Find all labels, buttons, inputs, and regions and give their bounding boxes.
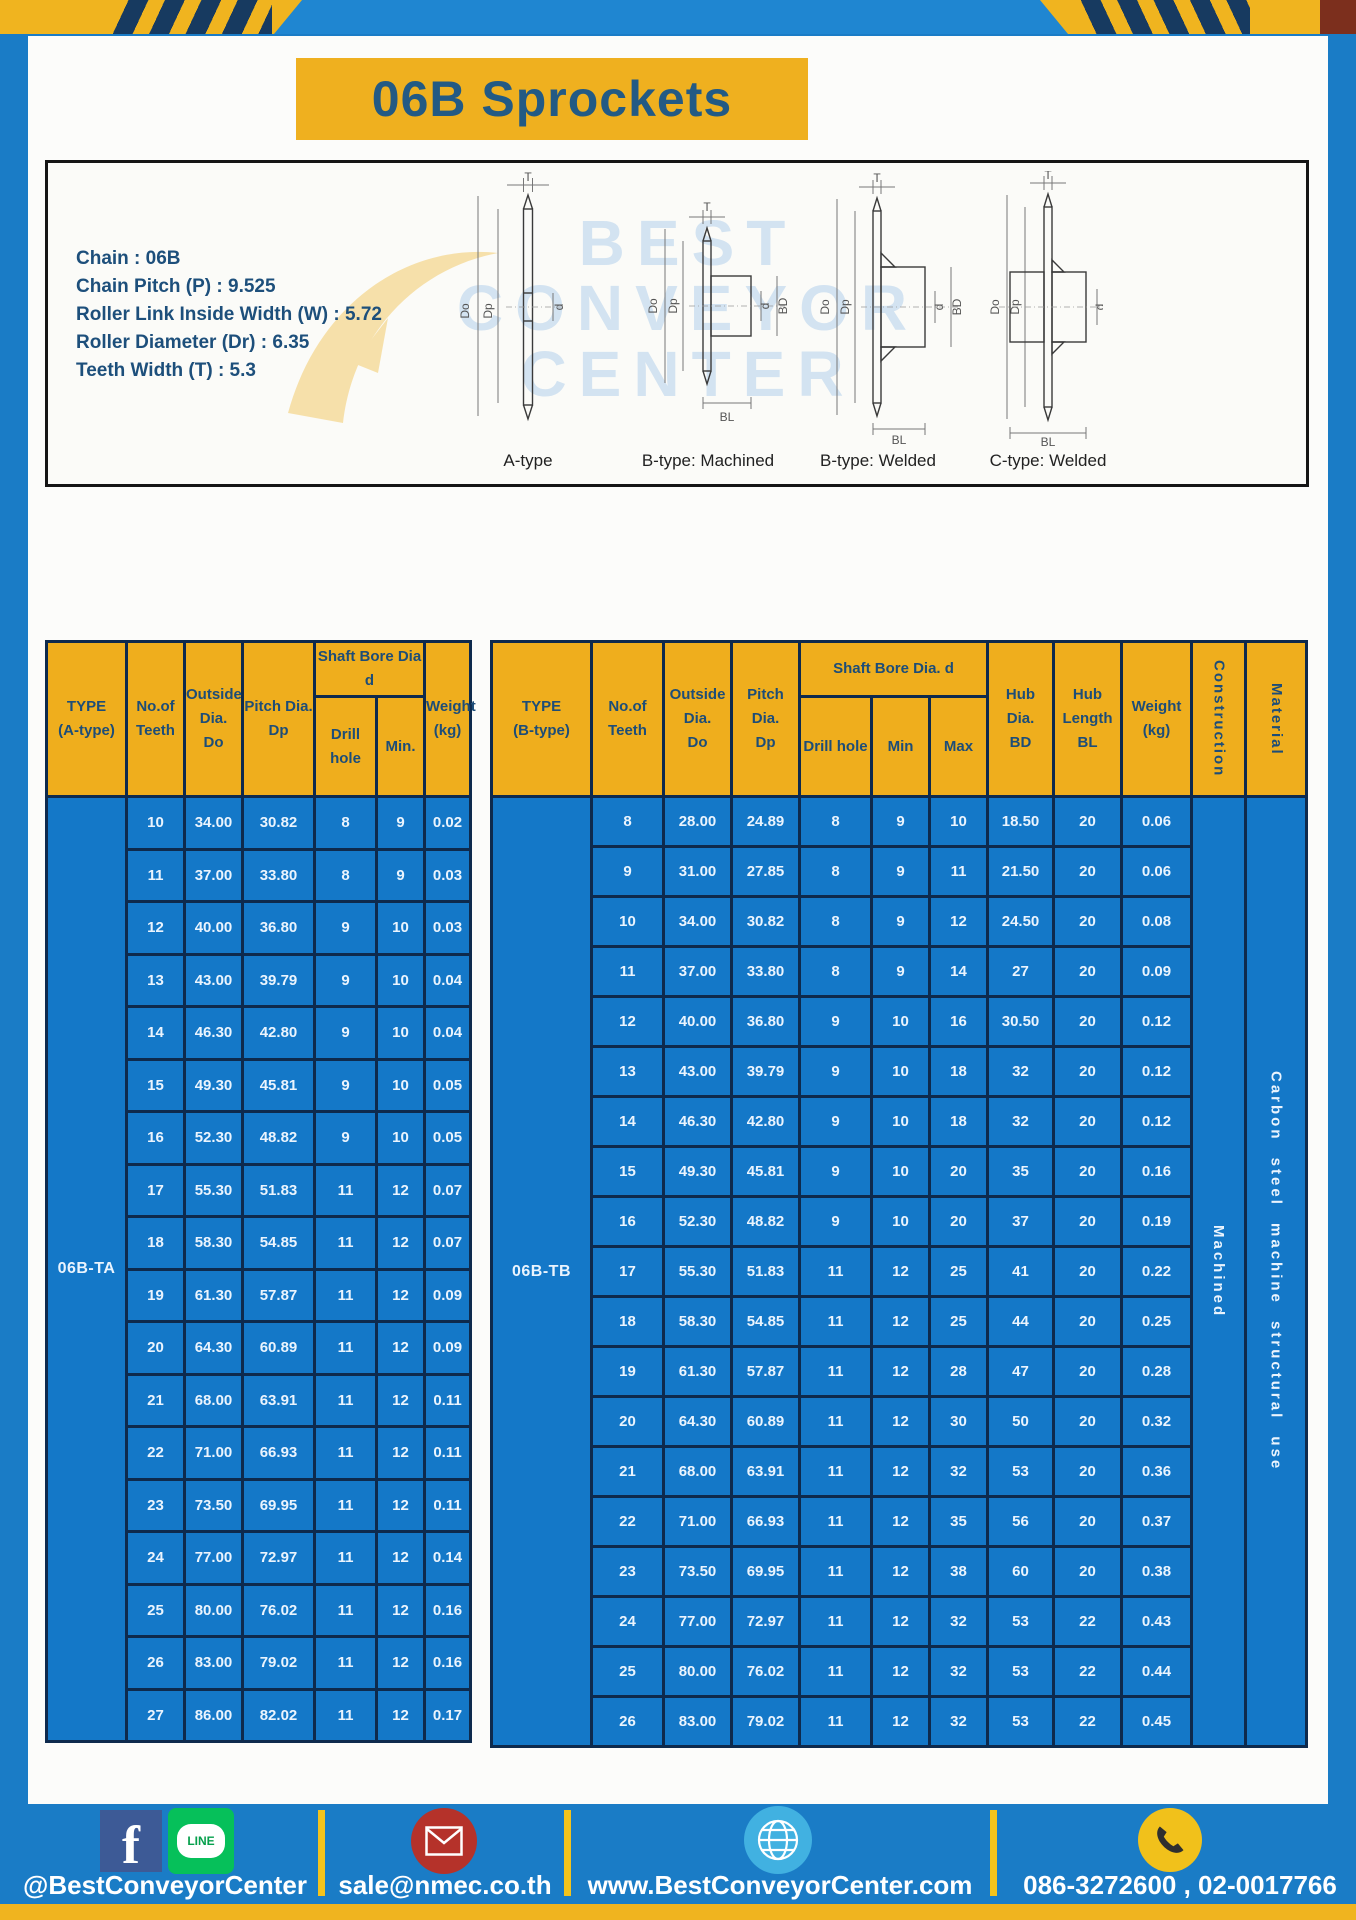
data-cell: 53 xyxy=(988,1647,1054,1697)
data-cell: 32 xyxy=(988,1097,1054,1147)
email-icon xyxy=(411,1808,477,1874)
footer-divider xyxy=(564,1810,571,1896)
table-row: 06B-TB828.0024.89891018.50200.06Machined… xyxy=(492,797,1307,847)
title-banner: 06B Sprockets xyxy=(296,58,808,140)
data-cell: 18 xyxy=(592,1297,664,1347)
data-cell: 12 xyxy=(930,897,988,947)
spec-chain: Chain : 06B xyxy=(76,245,382,273)
col-header-shaft-bore-group: Shaft Bore Dia d xyxy=(315,642,425,697)
data-cell: 12 xyxy=(377,1374,425,1427)
data-cell: 8 xyxy=(315,797,377,850)
data-cell: 20 xyxy=(127,1322,185,1375)
globe-icon xyxy=(744,1806,812,1874)
svg-text:T: T xyxy=(703,200,711,214)
data-cell: 21 xyxy=(592,1447,664,1497)
data-cell: 10 xyxy=(377,902,425,955)
data-cell: 48.82 xyxy=(243,1112,315,1165)
data-cell: 30.82 xyxy=(243,797,315,850)
data-cell: 9 xyxy=(315,1112,377,1165)
data-cell: 36.80 xyxy=(243,902,315,955)
type-cell: 06B-TB xyxy=(492,797,592,1747)
data-cell: 20 xyxy=(1054,1397,1122,1447)
data-cell: 24 xyxy=(127,1532,185,1585)
data-cell: 37 xyxy=(988,1197,1054,1247)
data-cell: 0.14 xyxy=(425,1532,471,1585)
data-cell: 9 xyxy=(872,947,930,997)
data-cell: 53 xyxy=(988,1447,1054,1497)
data-cell: 23 xyxy=(592,1547,664,1597)
data-cell: 83.00 xyxy=(185,1637,243,1690)
page-title: 06B Sprockets xyxy=(372,70,732,128)
data-cell: 55.30 xyxy=(185,1164,243,1217)
data-cell: 20 xyxy=(1054,1497,1122,1547)
data-cell: 12 xyxy=(872,1347,930,1397)
data-cell: 20 xyxy=(1054,1047,1122,1097)
col-header-type: TYPE (B-type) xyxy=(492,642,592,797)
data-cell: 0.07 xyxy=(425,1164,471,1217)
data-cell: 0.12 xyxy=(1122,1097,1192,1147)
data-cell: 42.80 xyxy=(243,1007,315,1060)
data-cell: 22 xyxy=(592,1497,664,1547)
data-cell: 9 xyxy=(377,849,425,902)
svg-text:d: d xyxy=(932,304,946,311)
data-cell: 0.02 xyxy=(425,797,471,850)
data-cell: 0.25 xyxy=(1122,1297,1192,1347)
table-row: 1549.3045.819102035200.16 xyxy=(492,1147,1307,1197)
data-cell: 8 xyxy=(800,847,872,897)
data-cell: 20 xyxy=(592,1397,664,1447)
data-cell: 12 xyxy=(872,1597,930,1647)
col-header-type: TYPE (A-type) xyxy=(47,642,127,797)
data-cell: 18.50 xyxy=(988,797,1054,847)
data-cell: 0.45 xyxy=(1122,1697,1192,1747)
data-cell: 12 xyxy=(377,1479,425,1532)
data-cell: 54.85 xyxy=(243,1217,315,1270)
data-cell: 10 xyxy=(377,954,425,1007)
a-type-drawing: Do Dp d T xyxy=(458,171,566,419)
data-cell: 9 xyxy=(800,997,872,1047)
data-cell: 79.02 xyxy=(243,1637,315,1690)
data-cell: 0.04 xyxy=(425,954,471,1007)
data-cell: 0.12 xyxy=(1122,997,1192,1047)
data-cell: 16 xyxy=(592,1197,664,1247)
data-cell: 24.50 xyxy=(988,897,1054,947)
data-cell: 12 xyxy=(872,1497,930,1547)
data-cell: 45.81 xyxy=(243,1059,315,1112)
data-cell: 22 xyxy=(1054,1697,1122,1747)
data-cell: 12 xyxy=(377,1269,425,1322)
data-cell: 0.19 xyxy=(1122,1197,1192,1247)
data-cell: 20 xyxy=(1054,1447,1122,1497)
data-cell: 8 xyxy=(592,797,664,847)
data-cell: 39.79 xyxy=(732,1047,800,1097)
svg-text:BL: BL xyxy=(892,433,907,446)
data-cell: 13 xyxy=(127,954,185,1007)
data-cell: 11 xyxy=(930,847,988,897)
svg-text:Do: Do xyxy=(646,298,660,314)
data-cell: 11 xyxy=(315,1637,377,1690)
data-cell: 60 xyxy=(988,1547,1054,1597)
data-cell: 20 xyxy=(1054,847,1122,897)
data-cell: 11 xyxy=(315,1427,377,1480)
svg-text:T: T xyxy=(1044,171,1052,182)
data-cell: 15 xyxy=(592,1147,664,1197)
col-header-weight: Weight (kg) xyxy=(425,642,471,797)
data-cell: 77.00 xyxy=(185,1532,243,1585)
data-cell: 13 xyxy=(592,1047,664,1097)
data-cell: 8 xyxy=(315,849,377,902)
data-cell: 30.50 xyxy=(988,997,1054,1047)
sprocket-section-drawings: Do Dp d T Do Dp d xyxy=(403,171,1103,446)
data-cell: 10 xyxy=(872,1197,930,1247)
c-type-welded-drawing: Do Dp d BD T BL xyxy=(988,171,1103,446)
table-row: 2477.0072.9711123253220.43 xyxy=(492,1597,1307,1647)
col-header-teeth: No.of Teeth xyxy=(592,642,664,797)
type-cell: 06B-TA xyxy=(47,797,127,1742)
data-cell: 17 xyxy=(592,1247,664,1297)
data-cell: 40.00 xyxy=(185,902,243,955)
data-cell: 9 xyxy=(800,1197,872,1247)
data-cell: 23 xyxy=(127,1479,185,1532)
table-row: 1343.0039.799101832200.12 xyxy=(492,1047,1307,1097)
data-cell: 26 xyxy=(127,1637,185,1690)
svg-text:Dp: Dp xyxy=(666,298,680,314)
data-cell: 68.00 xyxy=(185,1374,243,1427)
hazard-stripes xyxy=(1080,0,1250,34)
data-cell: 80.00 xyxy=(185,1584,243,1637)
data-cell: 51.83 xyxy=(732,1247,800,1297)
data-cell: 25 xyxy=(930,1297,988,1347)
table-row: 1858.3054.8511122544200.25 xyxy=(492,1297,1307,1347)
spec-roller-dia: Roller Diameter (Dr) : 6.35 xyxy=(76,329,382,357)
data-cell: 14 xyxy=(592,1097,664,1147)
col-header-outside-dia: Outside Dia. Do xyxy=(185,642,243,797)
table-row: 2271.0066.9311123556200.37 xyxy=(492,1497,1307,1547)
data-cell: 55.30 xyxy=(664,1247,732,1297)
website-url: www.BestConveyorCenter.com xyxy=(585,1870,975,1901)
data-cell: 12 xyxy=(127,902,185,955)
data-cell: 0.17 xyxy=(425,1689,471,1742)
data-cell: 60.89 xyxy=(732,1397,800,1447)
data-cell: 20 xyxy=(1054,897,1122,947)
data-cell: 10 xyxy=(592,897,664,947)
data-cell: 12 xyxy=(377,1322,425,1375)
col-header-pitch-dia: Pitch Dia. Dp xyxy=(732,642,800,797)
contact-footer: f LINE @BestConveyorCenter sale@nmec.co.… xyxy=(0,1804,1356,1904)
data-cell: 20 xyxy=(1054,1197,1122,1247)
line-bubble: LINE xyxy=(177,1824,225,1858)
data-cell: 11 xyxy=(315,1689,377,1742)
data-cell: 11 xyxy=(315,1322,377,1375)
data-cell: 9 xyxy=(592,847,664,897)
data-cell: 15 xyxy=(127,1059,185,1112)
data-cell: 49.30 xyxy=(664,1147,732,1197)
data-cell: 82.02 xyxy=(243,1689,315,1742)
data-cell: 10 xyxy=(377,1007,425,1060)
data-cell: 20 xyxy=(1054,947,1122,997)
data-cell: 43.00 xyxy=(664,1047,732,1097)
data-cell: 11 xyxy=(315,1269,377,1322)
data-cell: 57.87 xyxy=(243,1269,315,1322)
hazard-stripes xyxy=(112,0,272,34)
data-cell: 40.00 xyxy=(664,997,732,1047)
data-cell: 64.30 xyxy=(185,1322,243,1375)
data-cell: 58.30 xyxy=(185,1217,243,1270)
data-cell: 12 xyxy=(872,1297,930,1347)
vert-cell: Carbon steel machine structural use xyxy=(1246,797,1307,1747)
data-cell: 12 xyxy=(377,1427,425,1480)
data-cell: 77.00 xyxy=(664,1597,732,1647)
data-cell: 10 xyxy=(872,997,930,1047)
table-row: 1961.3057.8711122847200.28 xyxy=(492,1347,1307,1397)
data-cell: 25 xyxy=(127,1584,185,1637)
col-header-material: Material xyxy=(1246,642,1307,797)
data-cell: 0.22 xyxy=(1122,1247,1192,1297)
data-cell: 0.28 xyxy=(1122,1347,1192,1397)
data-cell: 10 xyxy=(377,1112,425,1165)
diagram-panel: BEST CONVEYOR CENTER Chain : 06B Chain P… xyxy=(45,160,1309,487)
data-cell: 14 xyxy=(930,947,988,997)
data-cell: 0.05 xyxy=(425,1059,471,1112)
data-cell: 11 xyxy=(127,849,185,902)
data-cell: 9 xyxy=(800,1097,872,1147)
data-cell: 34.00 xyxy=(185,797,243,850)
table-row: 931.0027.85891121.50200.06 xyxy=(492,847,1307,897)
social-handle: @BestConveyorCenter xyxy=(20,1870,310,1901)
data-cell: 27 xyxy=(988,947,1054,997)
table-row: 1446.3042.809101832200.12 xyxy=(492,1097,1307,1147)
vert-cell: Machined xyxy=(1192,797,1246,1747)
svg-text:Do: Do xyxy=(818,299,832,315)
b-type-machined-drawing: Do Dp d BD T BL xyxy=(646,200,790,424)
table-row: 06B-TA1034.0030.82890.02 xyxy=(47,797,471,850)
data-cell: 0.06 xyxy=(1122,847,1192,897)
data-cell: 58.30 xyxy=(664,1297,732,1347)
data-cell: 71.00 xyxy=(664,1497,732,1547)
data-cell: 22 xyxy=(1054,1647,1122,1697)
data-cell: 22 xyxy=(1054,1597,1122,1647)
data-cell: 10 xyxy=(872,1097,930,1147)
data-cell: 27.85 xyxy=(732,847,800,897)
data-cell: 12 xyxy=(377,1164,425,1217)
data-cell: 0.36 xyxy=(1122,1447,1192,1497)
data-cell: 0.16 xyxy=(1122,1147,1192,1197)
data-cell: 10 xyxy=(127,797,185,850)
data-cell: 36.80 xyxy=(732,997,800,1047)
data-cell: 73.50 xyxy=(664,1547,732,1597)
data-cell: 43.00 xyxy=(185,954,243,1007)
data-cell: 11 xyxy=(800,1347,872,1397)
col-header-outside-dia: Outside Dia. Do xyxy=(664,642,732,797)
data-cell: 18 xyxy=(127,1217,185,1270)
data-cell: 0.12 xyxy=(1122,1047,1192,1097)
data-cell: 61.30 xyxy=(185,1269,243,1322)
data-cell: 9 xyxy=(315,1007,377,1060)
table-row: 1652.3048.829102037200.19 xyxy=(492,1197,1307,1247)
col-header-drill-hole: Drill hole xyxy=(800,697,872,797)
data-cell: 0.16 xyxy=(425,1584,471,1637)
data-cell: 20 xyxy=(1054,997,1122,1047)
data-cell: 20 xyxy=(930,1147,988,1197)
data-cell: 11 xyxy=(800,1697,872,1747)
col-header-teeth: No.of Teeth xyxy=(127,642,185,797)
data-cell: 11 xyxy=(800,1247,872,1297)
data-cell: 11 xyxy=(800,1547,872,1597)
data-cell: 45.81 xyxy=(732,1147,800,1197)
data-cell: 11 xyxy=(800,1597,872,1647)
data-cell: 0.16 xyxy=(425,1637,471,1690)
data-cell: 0.04 xyxy=(425,1007,471,1060)
data-cell: 72.97 xyxy=(243,1532,315,1585)
data-cell: 0.06 xyxy=(1122,797,1192,847)
spec-roller-width: Roller Link Inside Width (W) : 5.72 xyxy=(76,301,382,329)
data-cell: 10 xyxy=(872,1047,930,1097)
data-cell: 18 xyxy=(930,1047,988,1097)
data-cell: 33.80 xyxy=(243,849,315,902)
data-cell: 37.00 xyxy=(185,849,243,902)
caption-a-type: A-type xyxy=(428,451,628,471)
data-cell: 25 xyxy=(930,1247,988,1297)
bottom-gold-strip xyxy=(0,1904,1356,1920)
data-cell: 20 xyxy=(1054,797,1122,847)
data-cell: 19 xyxy=(592,1347,664,1397)
data-cell: 14 xyxy=(127,1007,185,1060)
data-cell: 9 xyxy=(872,797,930,847)
col-header-min: Min. xyxy=(377,697,425,797)
data-cell: 37.00 xyxy=(664,947,732,997)
data-cell: 33.80 xyxy=(732,947,800,997)
datasheet-page: { "header": { "title": "06B Sprockets" }… xyxy=(0,0,1356,1920)
data-cell: 72.97 xyxy=(732,1597,800,1647)
data-cell: 32 xyxy=(930,1647,988,1697)
data-cell: 10 xyxy=(872,1147,930,1197)
data-cell: 69.95 xyxy=(243,1479,315,1532)
spec-pitch: Chain Pitch (P) : 9.525 xyxy=(76,273,382,301)
data-cell: 60.89 xyxy=(243,1322,315,1375)
facebook-icon: f xyxy=(100,1810,162,1872)
svg-text:T: T xyxy=(873,171,881,185)
svg-text:Dp: Dp xyxy=(838,299,852,315)
line-icon: LINE xyxy=(168,1808,234,1874)
data-cell: 20 xyxy=(1054,1097,1122,1147)
data-cell: 76.02 xyxy=(732,1647,800,1697)
data-cell: 35 xyxy=(988,1147,1054,1197)
data-cell: 11 xyxy=(800,1447,872,1497)
data-cell: 20 xyxy=(1054,1547,1122,1597)
data-cell: 24.89 xyxy=(732,797,800,847)
data-cell: 64.30 xyxy=(664,1397,732,1447)
svg-text:T: T xyxy=(524,171,532,184)
svg-text:BD: BD xyxy=(950,298,964,315)
data-cell: 32 xyxy=(988,1047,1054,1097)
data-cell: 12 xyxy=(872,1247,930,1297)
phone-icon xyxy=(1138,1808,1202,1872)
data-cell: 11 xyxy=(800,1297,872,1347)
data-cell: 18 xyxy=(930,1097,988,1147)
data-cell: 63.91 xyxy=(243,1374,315,1427)
data-cell: 57.87 xyxy=(732,1347,800,1397)
data-cell: 11 xyxy=(315,1374,377,1427)
data-cell: 53 xyxy=(988,1697,1054,1747)
data-cell: 9 xyxy=(315,1059,377,1112)
svg-text:Do: Do xyxy=(458,303,472,319)
data-cell: 44 xyxy=(988,1297,1054,1347)
svg-text:Dp: Dp xyxy=(481,303,495,319)
data-cell: 9 xyxy=(377,797,425,850)
data-cell: 21.50 xyxy=(988,847,1054,897)
page-card: 06B Sprockets BEST CONVEYOR CENTER Chain… xyxy=(28,36,1328,1804)
footer-divider xyxy=(990,1810,997,1896)
data-cell: 0.09 xyxy=(425,1269,471,1322)
data-cell: 16 xyxy=(930,997,988,1047)
data-cell: 11 xyxy=(800,1397,872,1447)
table-row: 2580.0076.0211123253220.44 xyxy=(492,1647,1307,1697)
data-cell: 11 xyxy=(592,947,664,997)
data-cell: 42.80 xyxy=(732,1097,800,1147)
table-row: 2064.3060.8911123050200.32 xyxy=(492,1397,1307,1447)
data-cell: 0.11 xyxy=(425,1479,471,1532)
data-cell: 26 xyxy=(592,1697,664,1747)
data-cell: 9 xyxy=(315,902,377,955)
data-cell: 12 xyxy=(377,1532,425,1585)
data-cell: 69.95 xyxy=(732,1547,800,1597)
data-cell: 24 xyxy=(592,1597,664,1647)
data-cell: 80.00 xyxy=(664,1647,732,1697)
data-cell: 86.00 xyxy=(185,1689,243,1742)
data-cell: 12 xyxy=(872,1547,930,1597)
svg-text:d: d xyxy=(758,303,772,310)
data-cell: 30 xyxy=(930,1397,988,1447)
data-cell: 0.08 xyxy=(1122,897,1192,947)
col-header-shaft-bore-group: Shaft Bore Dia. d xyxy=(800,642,988,697)
sprocket-table-b-type: TYPE (B-type) No.of Teeth Outside Dia. D… xyxy=(490,640,1308,1748)
data-cell: 9 xyxy=(872,847,930,897)
data-cell: 46.30 xyxy=(185,1007,243,1060)
data-cell: 49.30 xyxy=(185,1059,243,1112)
caption-c-welded: C-type: Welded xyxy=(948,451,1148,471)
data-cell: 53 xyxy=(988,1597,1054,1647)
data-cell: 48.82 xyxy=(732,1197,800,1247)
data-cell: 20 xyxy=(930,1197,988,1247)
data-cell: 32 xyxy=(930,1447,988,1497)
data-cell: 16 xyxy=(127,1112,185,1165)
data-cell: 0.44 xyxy=(1122,1647,1192,1697)
col-header-max: Max xyxy=(930,697,988,797)
data-cell: 0.32 xyxy=(1122,1397,1192,1447)
data-cell: 63.91 xyxy=(732,1447,800,1497)
data-cell: 32 xyxy=(930,1597,988,1647)
data-cell: 35 xyxy=(930,1497,988,1547)
data-cell: 0.11 xyxy=(425,1427,471,1480)
data-cell: 66.93 xyxy=(243,1427,315,1480)
table-row: 2683.0079.0211123253220.45 xyxy=(492,1697,1307,1747)
table-row: 1137.0033.80891427200.09 xyxy=(492,947,1307,997)
data-cell: 51.83 xyxy=(243,1164,315,1217)
col-header-hub-length: Hub Length BL xyxy=(1054,642,1122,797)
footer-divider xyxy=(318,1810,325,1896)
data-cell: 39.79 xyxy=(243,954,315,1007)
data-cell: 66.93 xyxy=(732,1497,800,1547)
table-row: 1240.0036.809101630.50200.12 xyxy=(492,997,1307,1047)
data-cell: 34.00 xyxy=(664,897,732,947)
data-cell: 12 xyxy=(872,1397,930,1447)
data-cell: 68.00 xyxy=(664,1447,732,1497)
data-cell: 0.09 xyxy=(425,1322,471,1375)
data-cell: 28.00 xyxy=(664,797,732,847)
data-cell: 10 xyxy=(930,797,988,847)
line-label: LINE xyxy=(187,1834,214,1848)
col-header-weight: Weight (kg) xyxy=(1122,642,1192,797)
